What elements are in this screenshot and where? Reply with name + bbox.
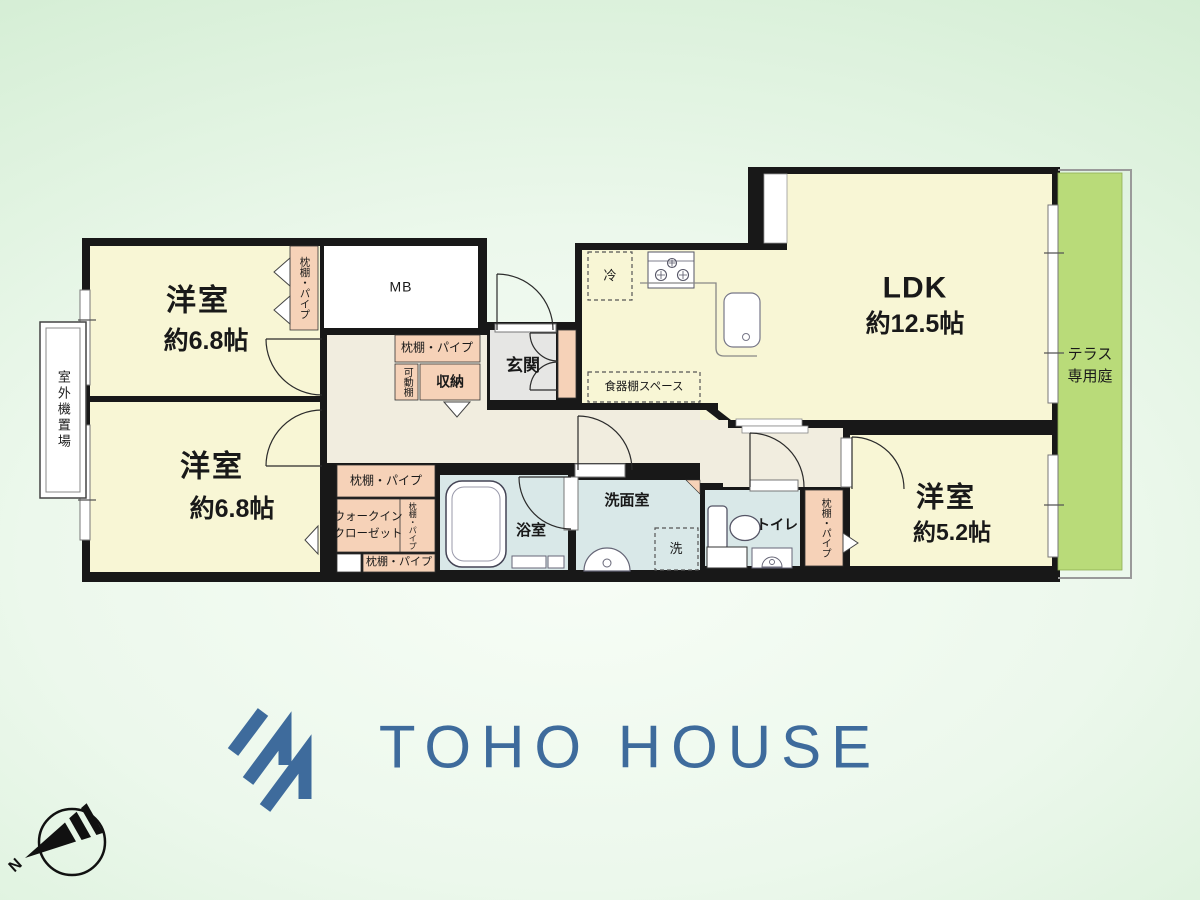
outdoor-unit-label: 室外機置場 — [56, 370, 70, 450]
wic-side-shelf-label: 枕棚・パイプ — [408, 502, 416, 550]
window-bedroom-c — [1048, 455, 1058, 557]
bedroom-b-name: 洋室 — [180, 451, 244, 483]
entrance-label: 玄関 — [506, 357, 540, 375]
toilet-label: トイレ — [756, 518, 798, 533]
storage-label: 収納 — [436, 375, 464, 390]
bedroom-c-size: 約5.2帖 — [913, 520, 991, 544]
wic-label-2: クローゼット — [334, 528, 403, 540]
window-ldk — [1048, 205, 1058, 403]
compass-icon — [25, 803, 105, 875]
kitchen-sink — [724, 293, 760, 347]
meter-box-label: MB — [390, 280, 413, 295]
wic-shelf-label: 枕棚・パイプ — [350, 475, 422, 488]
shoe-cabinet — [558, 330, 576, 398]
ldk-name: LDK — [883, 272, 948, 304]
bedroom-a-size: 約6.8帖 — [164, 328, 249, 354]
refrigerator-label: 冷 — [603, 269, 616, 283]
toho-house-logo-icon — [233, 712, 305, 808]
pipe-column — [764, 174, 787, 243]
terrace-label-2: 専用庭 — [1067, 369, 1112, 385]
walk-in-closet — [337, 499, 435, 552]
bedroom-c-name: 洋室 — [916, 482, 976, 511]
bedroom-a-name: 洋室 — [166, 285, 230, 317]
entrance-threshold — [495, 324, 556, 332]
bathtub — [446, 481, 506, 567]
shelf-pipe-storage-label: 枕棚・パイプ — [401, 342, 473, 355]
toilet-closet-label: 枕棚・パイプ — [819, 498, 830, 558]
bedroom-b-size: 約6.8帖 — [190, 496, 275, 522]
door-entrance — [497, 274, 553, 330]
toho-house-logo-text: TOHO HOUSE — [379, 713, 881, 782]
ldk-size: 約12.5帖 — [866, 311, 965, 337]
terrace-label-1: テラス — [1068, 347, 1113, 363]
movable-shelf-label: 可動棚 — [401, 367, 412, 397]
wic-label-1: ウォークイン — [334, 511, 403, 523]
closet-a-label: 枕棚・パイプ — [298, 257, 309, 320]
washer-label: 洗 — [669, 542, 682, 556]
dish-shelf-label: 食器棚スペース — [604, 381, 683, 393]
wic-bottom-shelf-label: 枕棚・パイプ — [366, 557, 432, 569]
floor-plan-page: 洋室 約6.8帖 洋室 約6.8帖 LDK 約12.5帖 洋室 約5.2帖 テラ… — [0, 0, 1200, 900]
room-bedroom-b — [90, 402, 320, 572]
sliding-door — [736, 419, 802, 426]
bathroom-label: 浴室 — [516, 523, 546, 539]
washroom-label: 洗面室 — [604, 493, 649, 509]
